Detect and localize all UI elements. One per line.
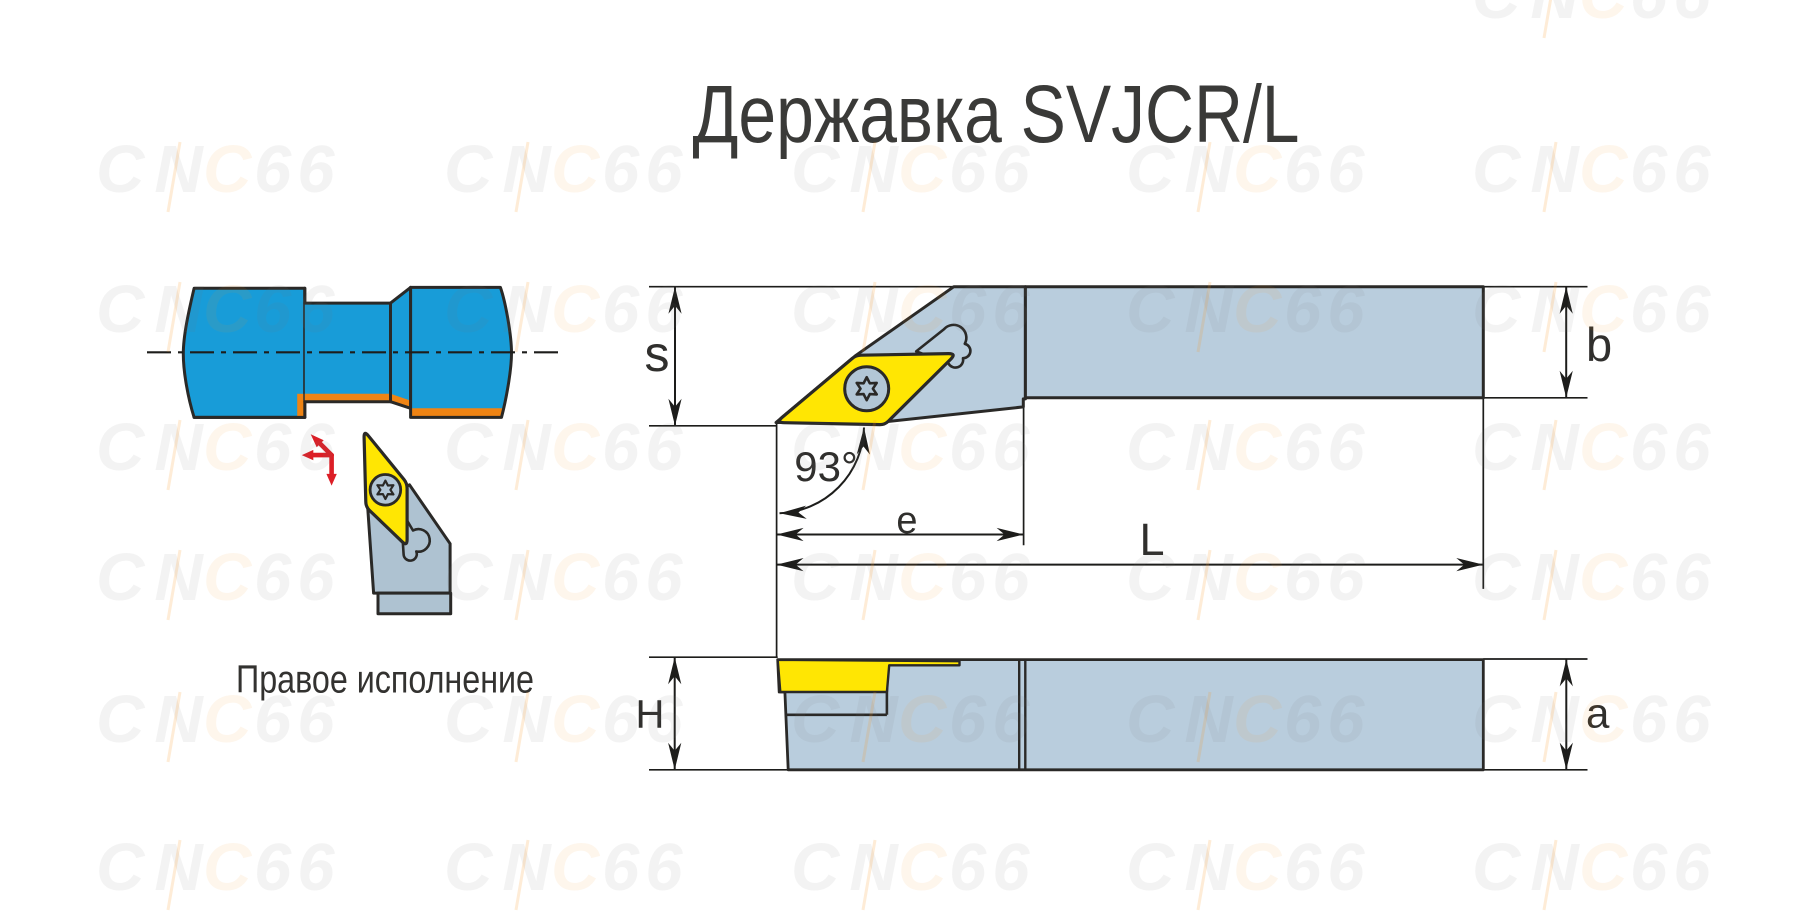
svg-text:e: e (896, 500, 917, 542)
